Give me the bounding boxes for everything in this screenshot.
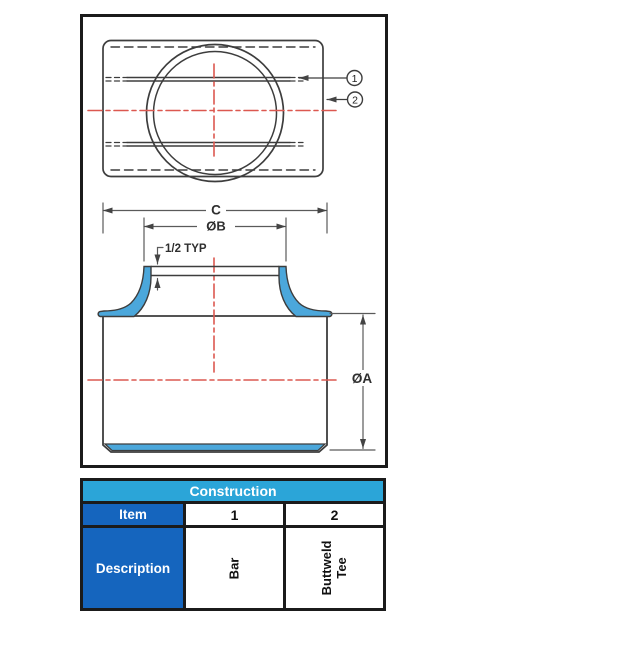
description-header-cell: Description [83, 528, 186, 608]
table-description-row: Description Bar Buttweld Tee [83, 528, 383, 608]
callout-2-label: 2 [352, 94, 358, 106]
item-2-cell: 2 [286, 504, 383, 525]
dim-c-label: C [211, 203, 221, 218]
description-2-text: Buttweld Tee [320, 532, 350, 604]
description-2-cell: Buttweld Tee [286, 528, 383, 608]
dim-a-label: ØA [352, 371, 373, 386]
dim-typ-label: 1/2 TYP [165, 243, 207, 255]
table-item-row: Item 1 2 [83, 504, 383, 528]
item-header-cell: Item [83, 504, 186, 525]
page: 1 2 [0, 0, 638, 650]
description-1-cell: Bar [186, 528, 286, 608]
callout-1-label: 1 [352, 73, 358, 85]
table-title-row: Construction [83, 481, 383, 504]
item-1-cell: 1 [186, 504, 286, 525]
description-1-text: Bar [227, 532, 242, 604]
table-title: Construction [189, 483, 276, 499]
dim-b-label: ØB [206, 219, 226, 234]
tee-body-outline [103, 316, 327, 452]
construction-table: Construction Item 1 2 Description Bar Bu… [80, 478, 386, 611]
bottom-bevel-highlight [105, 444, 325, 451]
